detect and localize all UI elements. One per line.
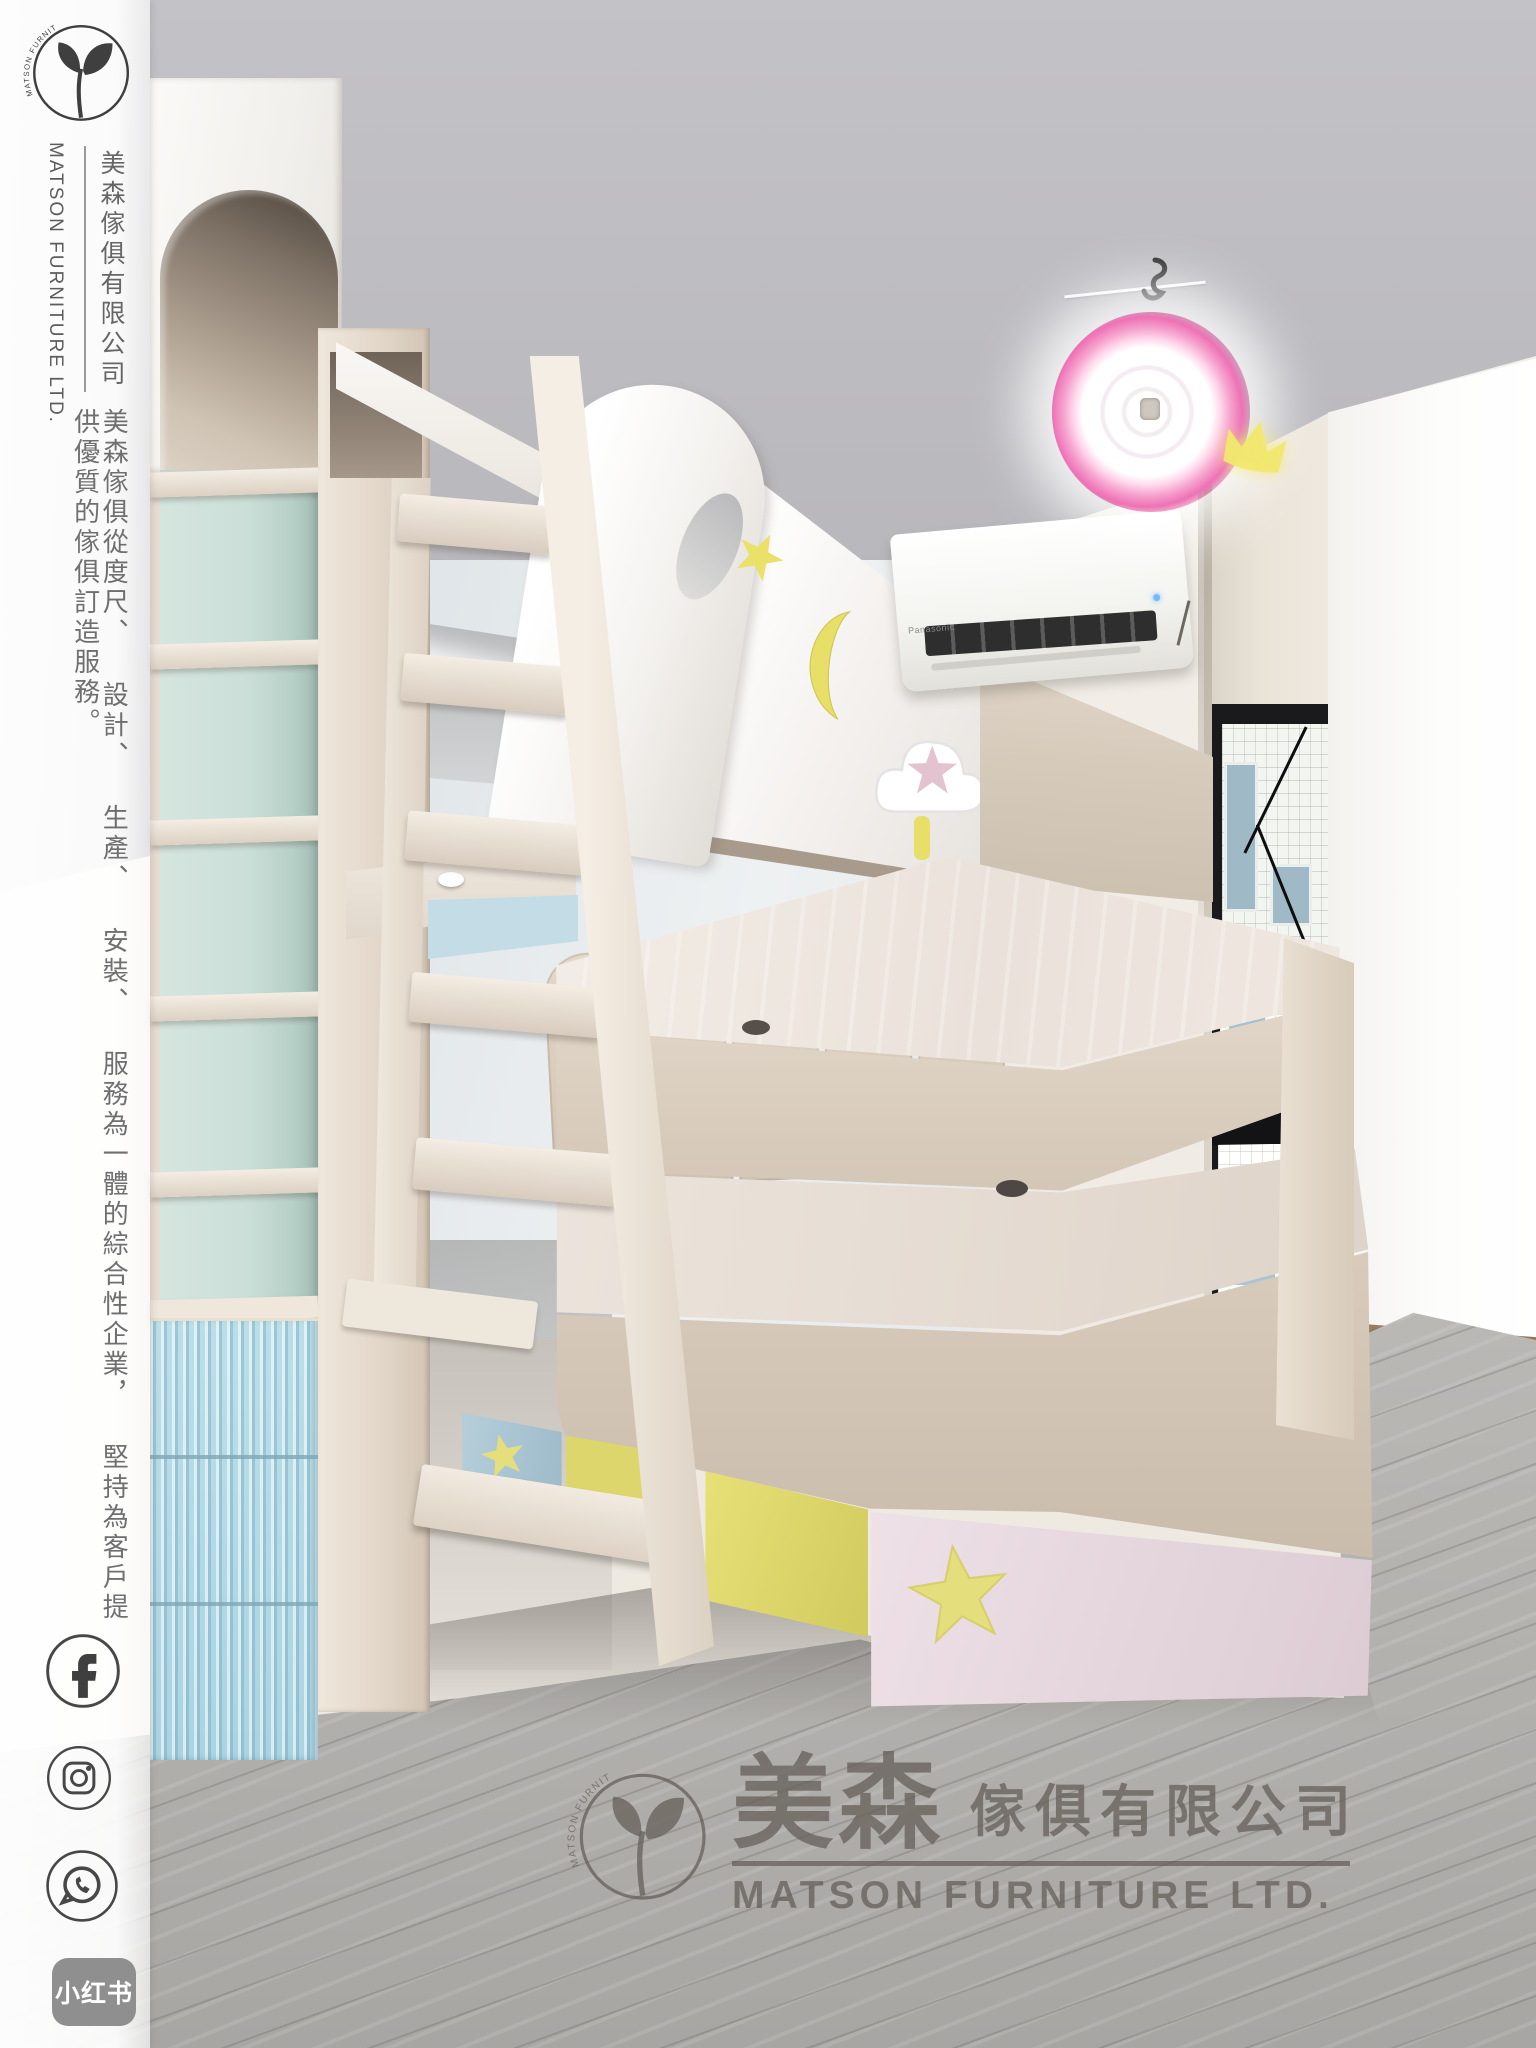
drawer-divider <box>150 1602 318 1606</box>
bed-right-end-panel <box>1276 938 1354 1440</box>
light-fitting <box>1140 398 1160 420</box>
air-conditioner: Panasonic <box>890 510 1195 693</box>
watermark-logo: MATSON FURNITURE <box>560 1762 720 1922</box>
brand-sidebar: MATSON FURNITURE MATSON FURNITURE LTD. 美… <box>0 0 150 2048</box>
shelf-board <box>150 467 321 497</box>
arched-niche <box>160 190 338 475</box>
shelf-board <box>150 639 321 669</box>
watermark-zh-primary: 美森 <box>732 1758 944 1855</box>
shelf-board <box>150 1167 321 1197</box>
facebook-icon <box>44 1632 122 1710</box>
finger-hole <box>996 1180 1028 1197</box>
moon-decal <box>794 577 875 753</box>
whatsapp-icon <box>44 1848 120 1924</box>
star-handle <box>901 1531 1017 1654</box>
star-tail-decal <box>914 816 930 860</box>
ac-status-led <box>1153 594 1161 602</box>
floor-watermark: MATSON FURNITURE 美森 傢俱有限公司 MATSON FURNIT… <box>462 1748 1382 1938</box>
company-name-zh: 美森傢俱有限公司 <box>92 150 128 400</box>
poster-root: Panasonic MATSON FURNITURE 美森 傢俱有限公司 MAT… <box>0 0 1536 2048</box>
xiaohongshu-badge: 小红书 <box>52 1958 136 2026</box>
fluted-blue-drawers <box>150 1318 318 1760</box>
computer-mouse <box>438 872 464 887</box>
divider <box>84 146 86 392</box>
xiaohongshu-label: 小红书 <box>55 1974 133 2010</box>
cloud-decal <box>868 690 994 840</box>
watermark-zh-secondary: 傢俱有限公司 <box>970 1771 1360 1855</box>
instagram-icon <box>45 1744 113 1812</box>
brand-logo: MATSON FURNITURE <box>18 16 140 138</box>
company-tagline: 美森傢俱從度尺、 設計、 生產、 安裝、 服務為一體的綜合性企業， 堅持為客戶提… <box>70 408 127 1633</box>
ceiling-hook-icon <box>1138 256 1172 318</box>
company-name-en: MATSON FURNITURE LTD. <box>44 142 66 412</box>
shelf-board <box>150 991 321 1021</box>
drawer-divider <box>150 1455 318 1459</box>
watermark-en: MATSON FURNITURE LTD. <box>732 1874 1382 1918</box>
window-pane-upper <box>1222 724 1328 950</box>
finger-hole <box>742 1020 770 1035</box>
right-wall <box>1328 352 1536 1412</box>
shelf-board <box>150 815 321 845</box>
